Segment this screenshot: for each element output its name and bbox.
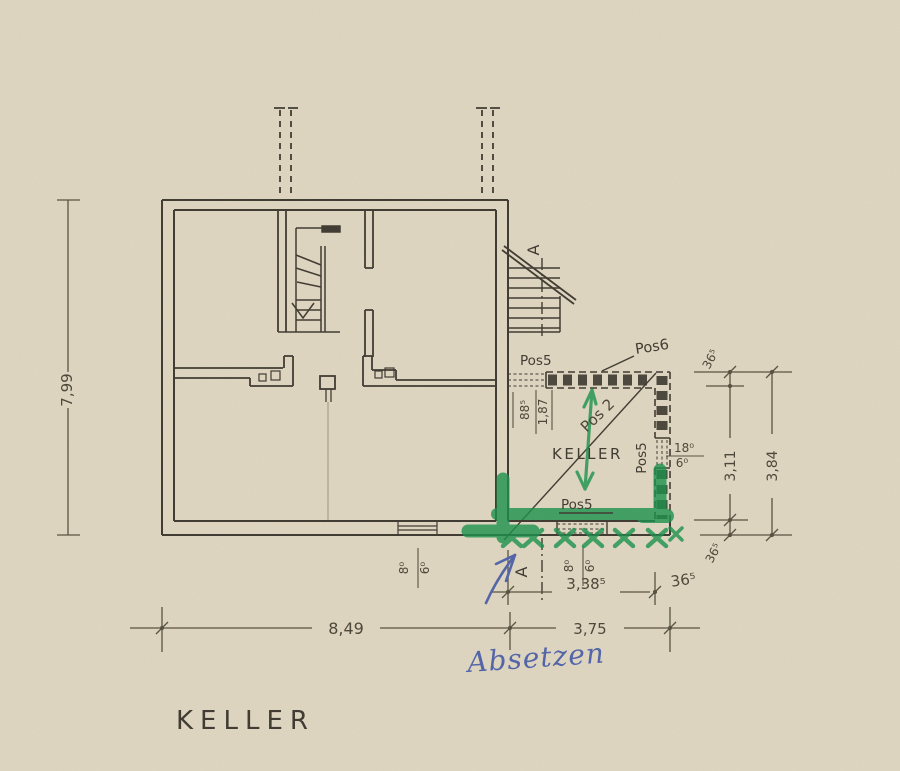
room-label-keller: KELLER	[552, 445, 623, 463]
dim-overall-width: 8,49	[328, 619, 364, 638]
dim-overall-depth: 7,99	[58, 373, 76, 406]
dim-wall-bottom-thickness: 36⁵	[670, 569, 697, 590]
dim-bottom-door-height: 6⁰	[583, 560, 597, 573]
section-marker-top: A	[524, 244, 543, 255]
dim-left-window-height: 6⁰	[418, 562, 432, 575]
dim-top-door-lintel: 1,87	[536, 399, 550, 426]
dim-right-window-width: 18⁰	[674, 441, 694, 455]
dim-bottom-door-width: 8⁰	[562, 560, 576, 573]
floor-plan: 7,99 8,49 3,75 3,38⁵ 36⁵ 3,11 3,84 36⁵ 3…	[0, 0, 900, 771]
label-pos5-top-door: Pos5	[520, 353, 552, 369]
drawing-sheet: 7,99 8,49 3,75 3,38⁵ 36⁵ 3,11 3,84 36⁵ 3…	[0, 0, 900, 771]
dim-keller-inner-width: 3,38⁵	[566, 575, 605, 593]
dim-top-door-width: 88⁵	[518, 400, 532, 420]
dim-left-window-width: 8⁰	[397, 562, 411, 575]
dim-keller-inner-depth: 3,11	[723, 450, 739, 481]
sheet-title-keller: KELLER	[176, 706, 315, 736]
section-marker-bottom: A	[512, 566, 531, 577]
dim-keller-outer-depth: 3,84	[765, 450, 781, 481]
label-pos5-bottom-door: Pos5	[561, 497, 593, 513]
dim-right-window-height: 6⁰	[676, 456, 689, 470]
dim-keller-outer-width: 3,75	[573, 620, 606, 638]
label-pos5-right-window: Pos5	[634, 442, 650, 474]
